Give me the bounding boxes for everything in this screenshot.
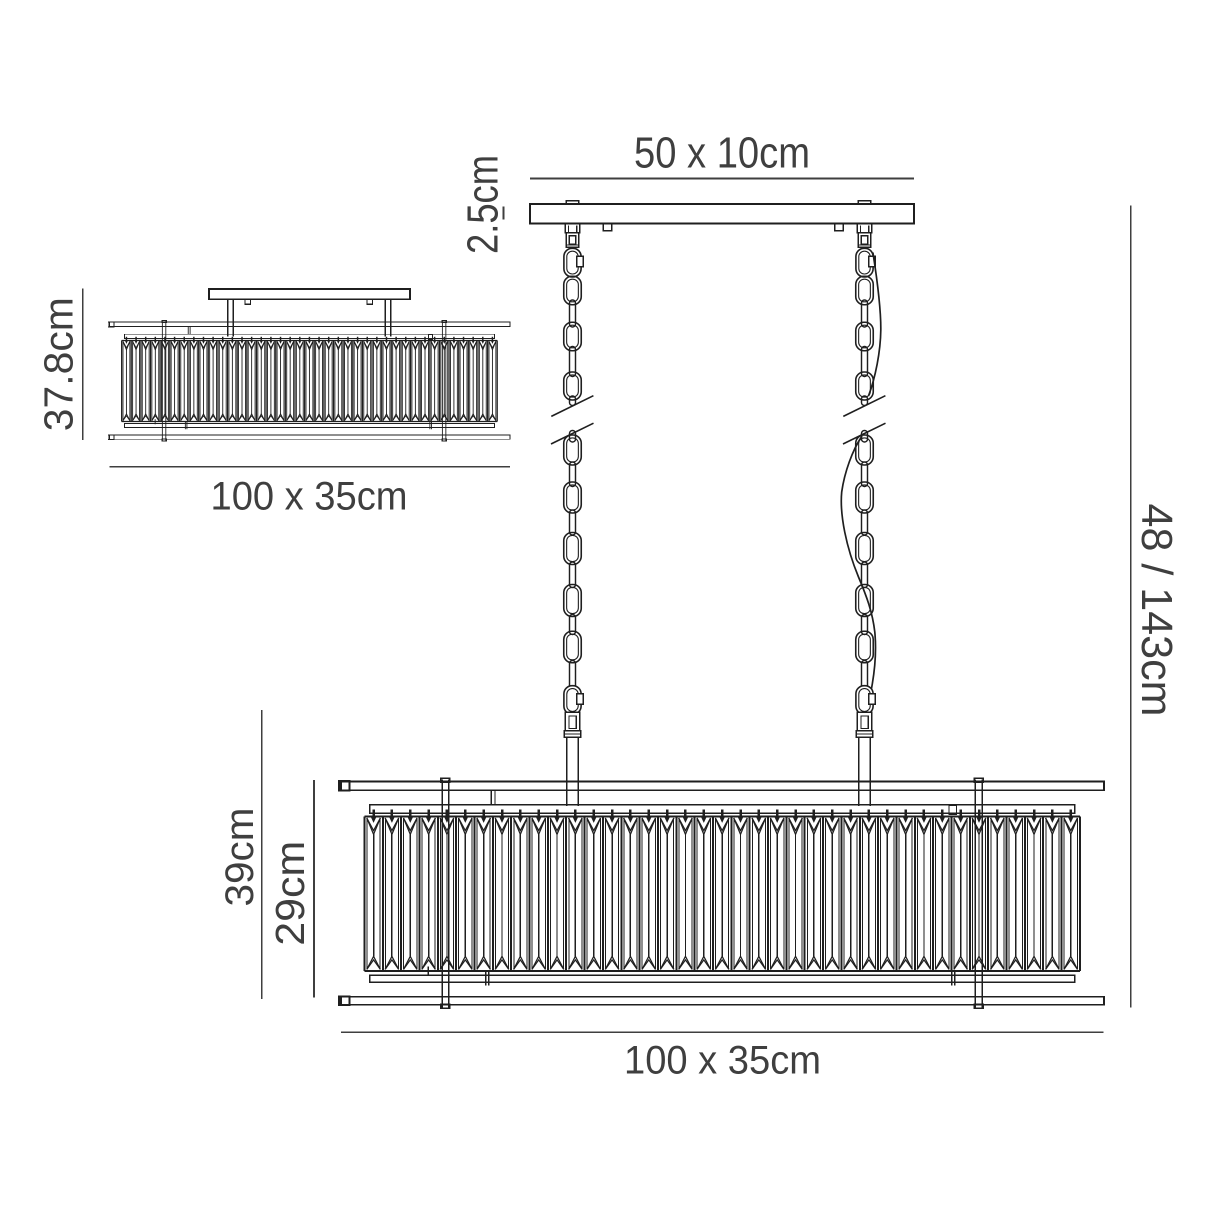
svg-text:100 x 35cm: 100 x 35cm <box>624 1039 821 1083</box>
svg-text:100 x 35cm: 100 x 35cm <box>211 475 408 519</box>
svg-text:29cm: 29cm <box>267 841 313 946</box>
svg-text:48 / 143cm: 48 / 143cm <box>1132 504 1181 717</box>
svg-text:50 x 10cm: 50 x 10cm <box>634 129 810 178</box>
svg-text:39cm: 39cm <box>218 808 262 907</box>
svg-text:37.8cm: 37.8cm <box>36 297 82 431</box>
svg-text:2.5cm: 2.5cm <box>459 155 508 254</box>
